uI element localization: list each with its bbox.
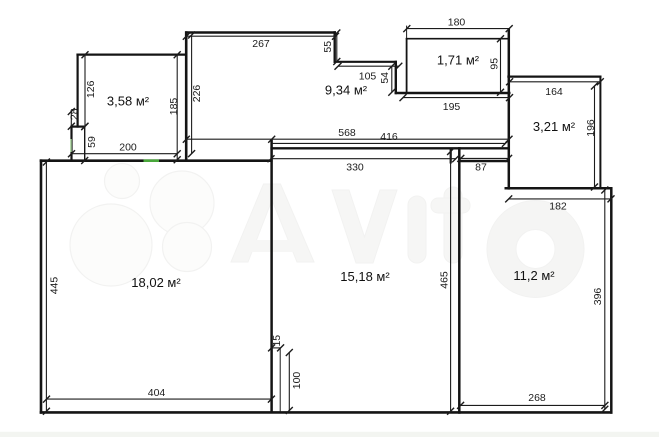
svg-text:182: 182 xyxy=(549,200,567,212)
svg-text:95: 95 xyxy=(489,58,501,70)
svg-text:268: 268 xyxy=(528,392,546,404)
svg-text:54: 54 xyxy=(379,72,391,84)
svg-text:445: 445 xyxy=(49,277,61,295)
svg-text:404: 404 xyxy=(148,387,166,399)
svg-text:330: 330 xyxy=(346,161,364,173)
svg-text:195: 195 xyxy=(443,101,461,113)
svg-text:15: 15 xyxy=(271,335,283,347)
svg-text:11,2 м²: 11,2 м² xyxy=(513,268,555,283)
svg-text:100: 100 xyxy=(291,372,303,390)
svg-text:465: 465 xyxy=(439,271,451,289)
svg-text:55: 55 xyxy=(322,41,334,53)
svg-text:396: 396 xyxy=(592,288,604,306)
svg-text:226: 226 xyxy=(191,85,203,103)
svg-text:28: 28 xyxy=(68,108,80,120)
svg-text:18,02 м²: 18,02 м² xyxy=(131,275,181,290)
svg-text:59: 59 xyxy=(86,136,98,148)
svg-text:196: 196 xyxy=(585,119,597,137)
svg-text:267: 267 xyxy=(252,38,270,50)
svg-text:185: 185 xyxy=(168,98,180,116)
svg-text:180: 180 xyxy=(448,16,466,28)
svg-text:416: 416 xyxy=(380,131,398,143)
svg-text:568: 568 xyxy=(338,127,356,139)
svg-text:3,21 м²: 3,21 м² xyxy=(533,119,576,134)
svg-text:126: 126 xyxy=(85,80,97,98)
svg-text:164: 164 xyxy=(545,86,563,98)
svg-text:9,34 м²: 9,34 м² xyxy=(325,83,368,98)
svg-text:200: 200 xyxy=(119,141,137,153)
svg-text:1,71 м²: 1,71 м² xyxy=(437,52,480,67)
svg-text:87: 87 xyxy=(475,161,487,173)
svg-text:3,58 м²: 3,58 м² xyxy=(107,94,150,109)
svg-text:105: 105 xyxy=(359,70,377,82)
svg-text:15,18 м²: 15,18 м² xyxy=(340,269,390,284)
